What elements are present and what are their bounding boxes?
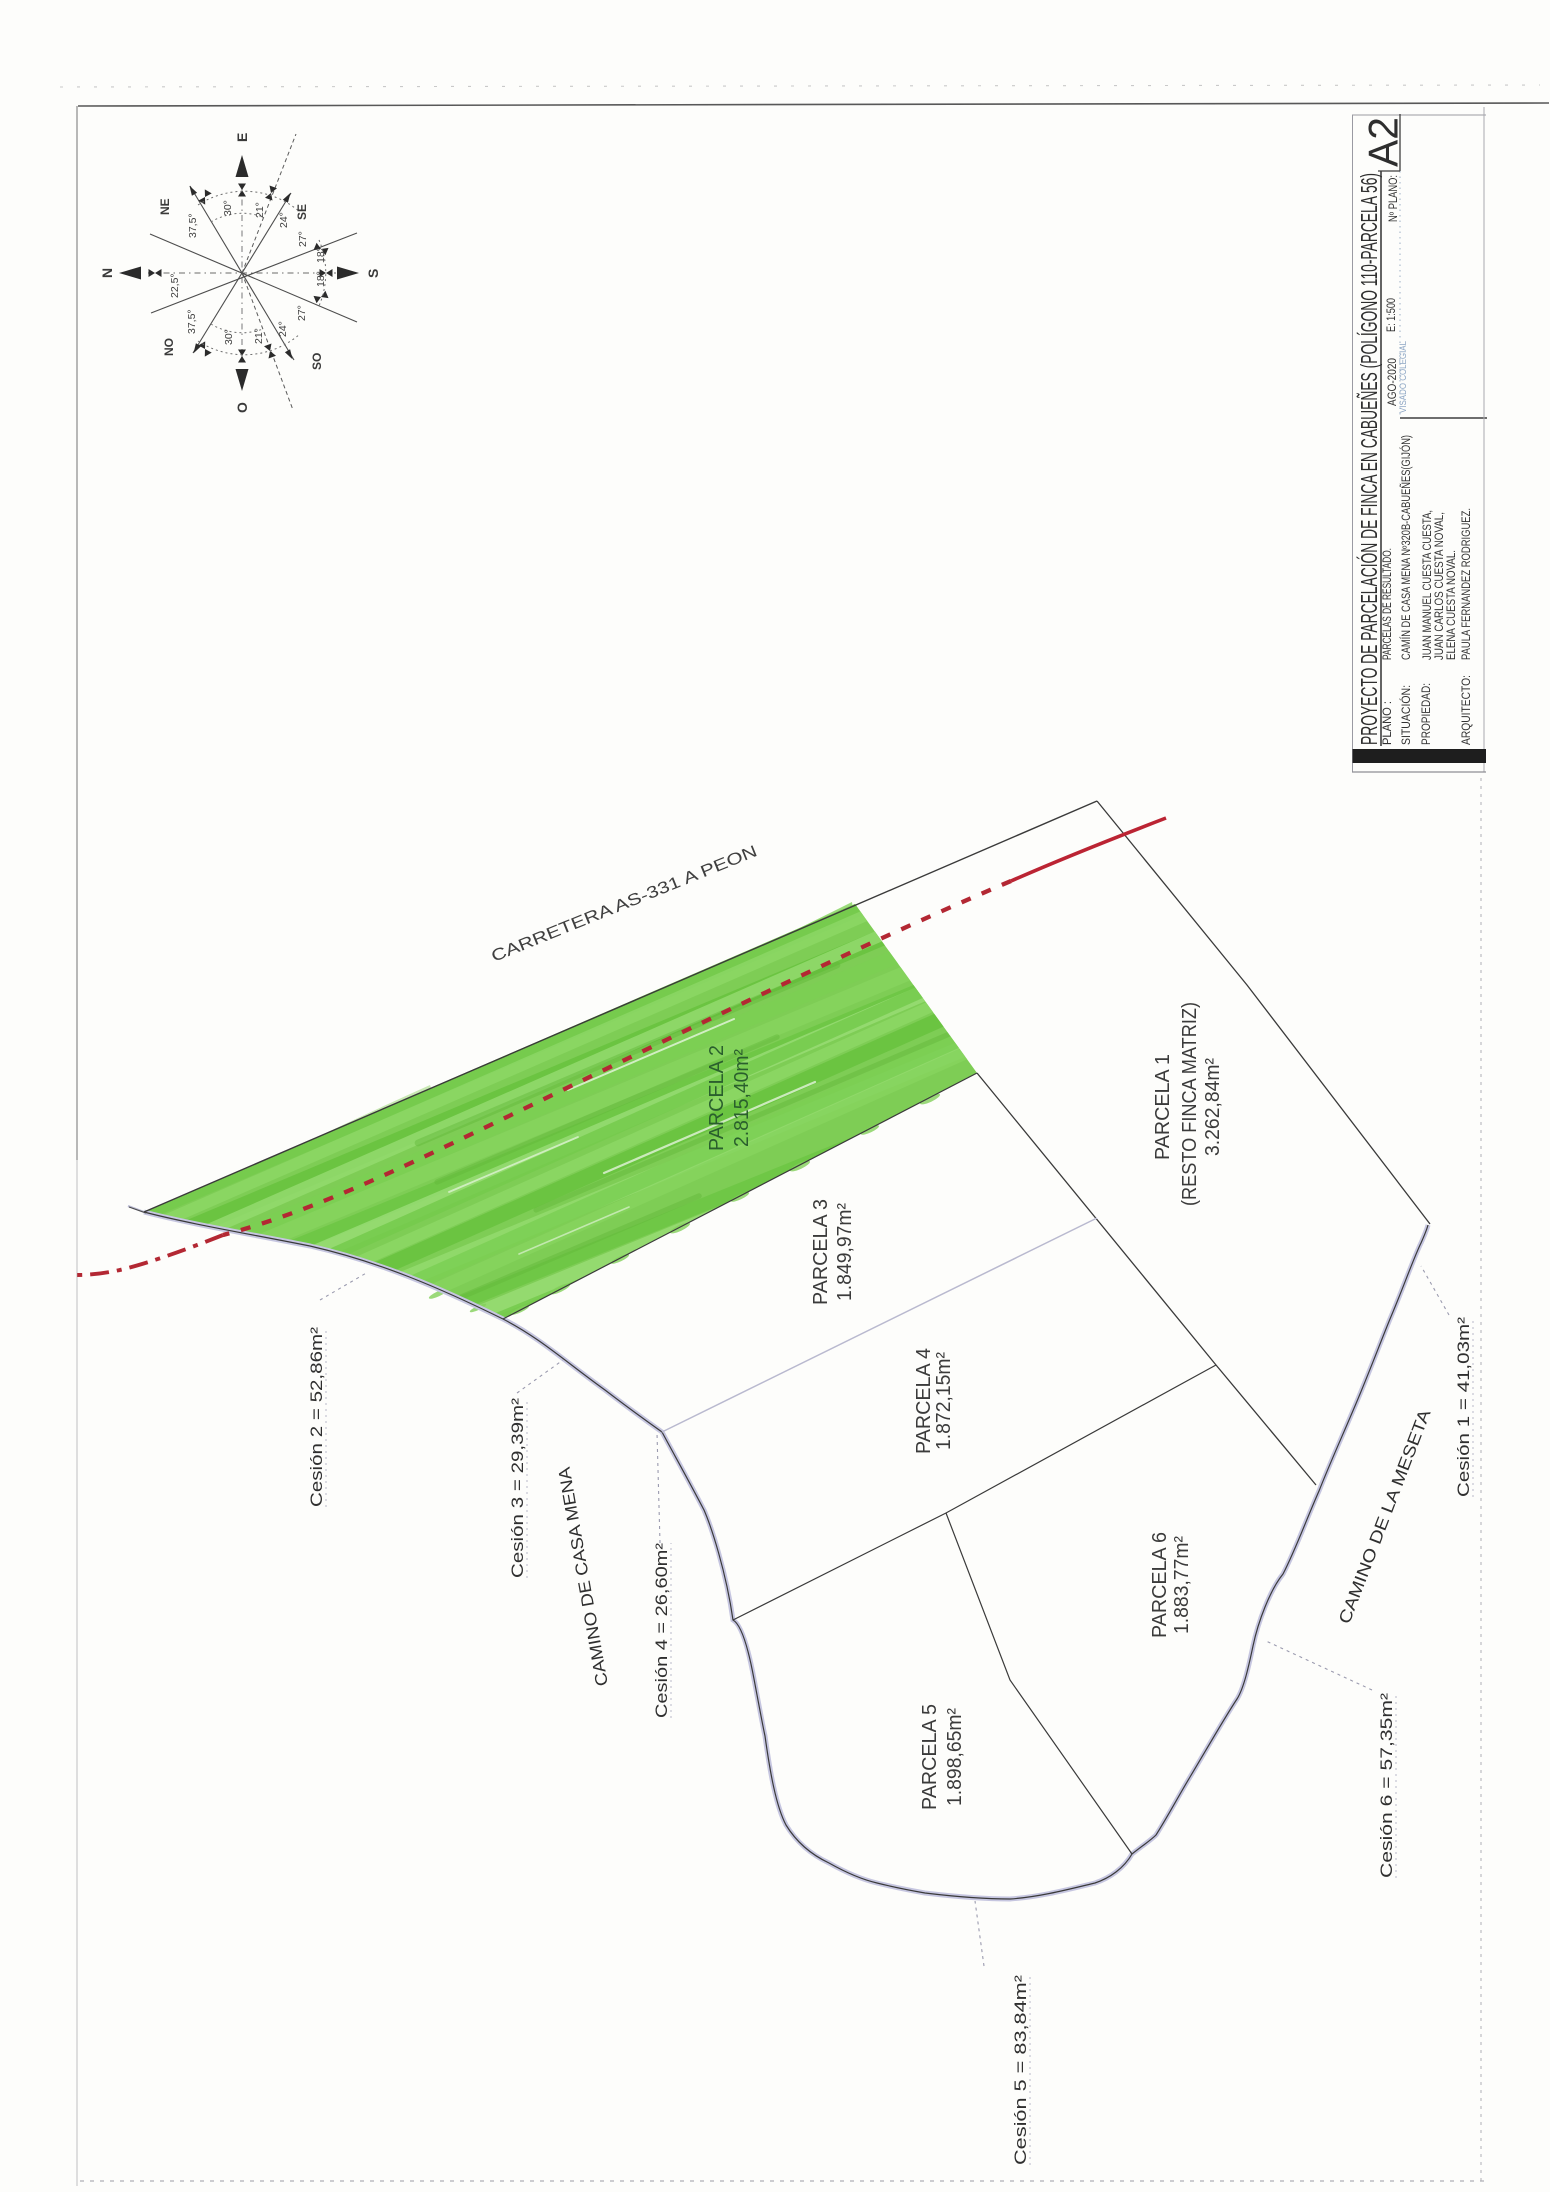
svg-text:22,5°: 22,5° (169, 273, 181, 298)
svg-text:(RESTO FINCA MATRIZ): (RESTO FINCA MATRIZ) (1178, 1002, 1201, 1206)
svg-text:SITUACIÓN:: SITUACIÓN: (1400, 685, 1413, 745)
svg-text:37,5°: 37,5° (187, 213, 199, 238)
svg-text:SO: SO (310, 353, 324, 370)
svg-text:1.898,65m²: 1.898,65m² (943, 1708, 966, 1806)
svg-text:21°: 21° (253, 328, 265, 344)
svg-text:Cesión 3 = 29,39m²: Cesión 3 = 29,39m² (509, 1397, 527, 1578)
svg-text:Nº PLANO:: Nº PLANO: (1388, 175, 1400, 222)
svg-text:N: N (99, 268, 115, 278)
svg-text:21°: 21° (254, 202, 266, 218)
svg-text:PARCELAS DE RESULTADO.: PARCELAS DE RESULTADO. (1382, 548, 1394, 660)
svg-text:E: E (234, 133, 250, 142)
svg-text:NO: NO (162, 338, 176, 356)
svg-text:NE: NE (158, 198, 172, 215)
svg-text:PARCELA 5: PARCELA 5 (918, 1704, 941, 1810)
svg-text:Cesión 6 = 57,35m²: Cesión 6 = 57,35m² (1378, 1692, 1396, 1878)
svg-text:PARCELA 3: PARCELA 3 (809, 1199, 832, 1305)
svg-text:O: O (234, 402, 250, 413)
svg-text:ARQUITECTO:: ARQUITECTO: (1461, 675, 1473, 745)
svg-text:PROYECTO DE PARCELACIÓN DE FIN: PROYECTO DE PARCELACIÓN DE FINCA EN CABU… (1356, 173, 1382, 745)
svg-text:30°: 30° (223, 329, 235, 345)
svg-text:1.883,77m²: 1.883,77m² (1170, 1536, 1193, 1634)
svg-text:18°: 18° (315, 247, 327, 263)
svg-text:E: 1:500: E: 1:500 (1386, 298, 1398, 332)
svg-text:Cesión 2 = 52,86m²: Cesión 2 = 52,86m² (308, 1326, 326, 1507)
svg-text:JUAN CARLOS CUESTA NOVAL,: JUAN CARLOS CUESTA NOVAL, (1434, 512, 1446, 660)
svg-text:Cesión 5 = 83,84m²: Cesión 5 = 83,84m² (1012, 1974, 1030, 2165)
svg-text:PAULA FERNANDEZ RODRIGUEZ.: PAULA FERNANDEZ RODRIGUEZ. (1461, 508, 1473, 660)
svg-text:30°: 30° (222, 200, 234, 216)
svg-text:27°: 27° (297, 231, 309, 247)
svg-text:S: S (365, 269, 381, 278)
svg-text:ELENA CUESTA NOVAL.: ELENA CUESTA NOVAL. (1446, 550, 1458, 660)
svg-text:PLANO :: PLANO : (1382, 701, 1394, 745)
svg-text:CAMÍN DE CASA MENA Nº320B-CABU: CAMÍN DE CASA MENA Nº320B-CABUEÑES(GIJÓN… (1400, 435, 1413, 660)
svg-text:1.872,15m²: 1.872,15m² (932, 1352, 955, 1450)
svg-text:PARCELA 6: PARCELA 6 (1148, 1532, 1171, 1638)
svg-text:SE: SE (295, 204, 309, 220)
svg-text:3.262,84m²: 3.262,84m² (1201, 1058, 1224, 1156)
svg-text:24°: 24° (277, 321, 289, 337)
svg-text:27°: 27° (296, 305, 308, 321)
svg-text:1.849,97m²: 1.849,97m² (833, 1203, 856, 1301)
svg-text:Cesión 4 = 26,60m²: Cesión 4 = 26,60m² (653, 1542, 671, 1718)
svg-text:24°: 24° (278, 212, 290, 228)
svg-text:PARCELA 1: PARCELA 1 (1151, 1054, 1174, 1160)
svg-text:2.815,40m²: 2.815,40m² (730, 1049, 753, 1147)
svg-text:37,5°: 37,5° (186, 309, 198, 334)
svg-text:PROPIEDAD:: PROPIEDAD: (1421, 683, 1433, 745)
svg-text:Cesión 1 = 41,03m²: Cesión 1 = 41,03m² (1455, 1316, 1473, 1497)
svg-text:VISADO COLEGIAL: VISADO COLEGIAL (1398, 341, 1408, 413)
svg-text:PARCELA 2: PARCELA 2 (705, 1045, 728, 1151)
svg-text:18°: 18° (315, 271, 327, 287)
svg-text:A2: A2 (1360, 117, 1407, 167)
svg-text:JUAN MANUEL CUESTA CUESTA,: JUAN MANUEL CUESTA CUESTA, (1422, 510, 1434, 660)
